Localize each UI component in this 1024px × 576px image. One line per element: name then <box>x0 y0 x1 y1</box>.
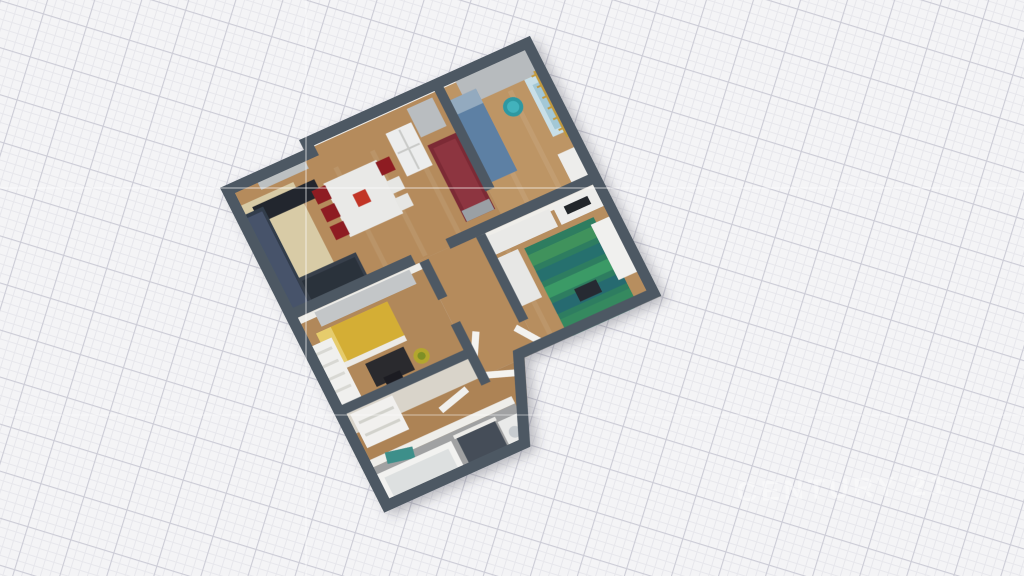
floorplan-3d-viewport[interactable]: CENTURY 21 <box>0 0 1024 576</box>
floorplan-stage: CENTURY 21 <box>0 0 1024 576</box>
